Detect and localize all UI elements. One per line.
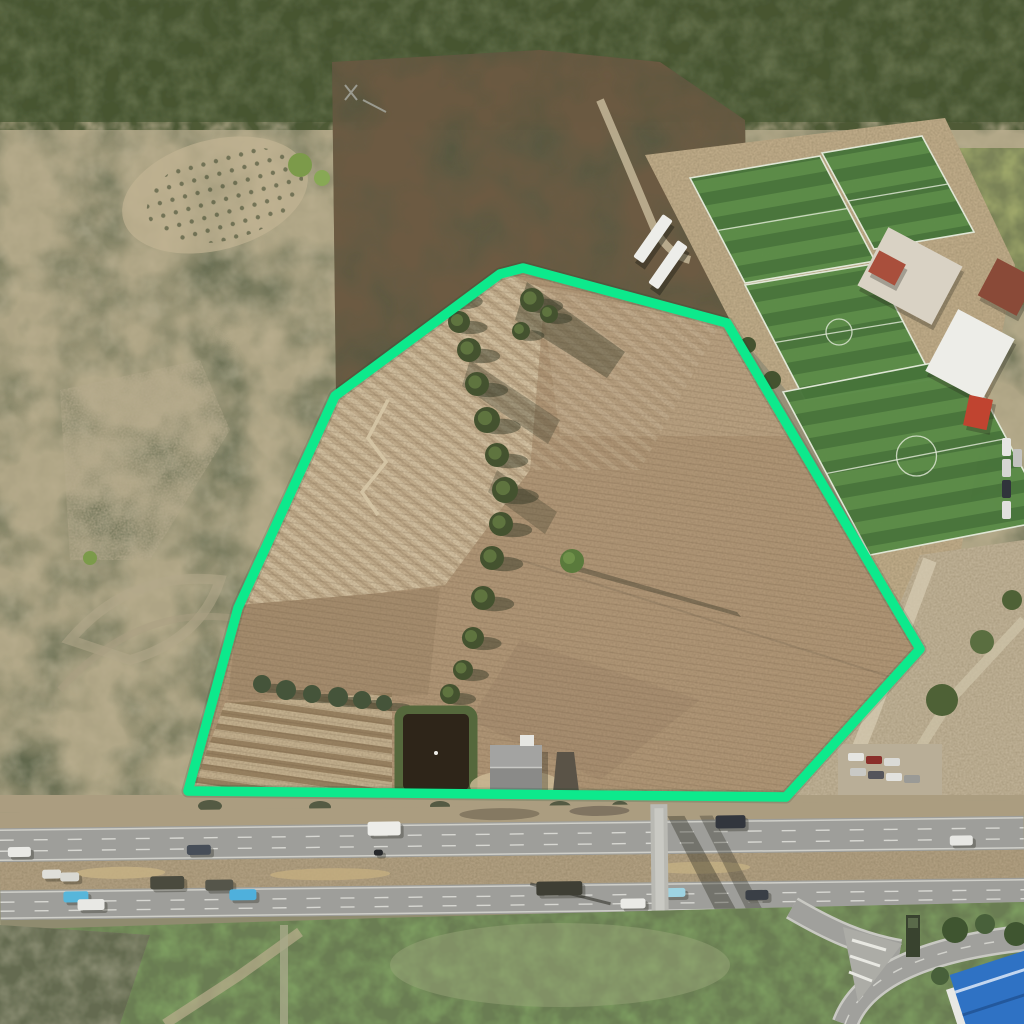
vehicle — [229, 889, 256, 900]
parked-car — [868, 771, 884, 779]
tree-highlight — [456, 663, 467, 674]
tree-highlight — [523, 291, 536, 304]
bush — [328, 687, 348, 707]
tree — [975, 914, 995, 934]
shed — [520, 735, 534, 746]
house-roof-north — [490, 745, 542, 768]
tree-highlight — [496, 481, 510, 495]
roadside-sign-layer — [906, 915, 920, 957]
tree — [1002, 590, 1022, 610]
tree-highlight — [465, 630, 477, 642]
bush — [276, 680, 296, 700]
vehicle — [205, 879, 233, 890]
vehicle — [374, 850, 383, 856]
vehicle — [60, 872, 79, 881]
vehicle — [187, 845, 211, 855]
vehicle — [42, 870, 61, 879]
tree-highlight — [460, 341, 473, 354]
aerial-photo: Aerial drone photo of a farmland parcel … — [0, 0, 1024, 1024]
parked-car — [904, 775, 920, 783]
worn-track — [280, 925, 288, 1024]
tree — [942, 917, 968, 943]
bush — [253, 675, 271, 693]
tree — [931, 967, 949, 985]
tree-highlight — [492, 515, 505, 528]
house-roof-south — [490, 768, 542, 791]
tree — [926, 684, 958, 716]
tree-highlight — [483, 549, 496, 562]
worn-grass-patch — [390, 923, 730, 1007]
vehicle — [368, 821, 401, 835]
vehicle — [715, 815, 745, 828]
lone-tree-highlight — [563, 552, 575, 564]
bird — [434, 751, 438, 755]
vehicle — [8, 847, 31, 857]
vehicle — [620, 898, 645, 908]
tree-highlight — [468, 375, 481, 388]
vehicle — [536, 881, 582, 896]
green-bush — [314, 170, 330, 186]
bush — [376, 695, 392, 711]
parked-car — [866, 756, 882, 764]
billboard-panel — [908, 918, 918, 928]
tree — [970, 630, 994, 654]
parked-car — [886, 773, 902, 781]
green-bush — [83, 551, 97, 565]
tree-highlight — [478, 411, 492, 425]
tree-highlight — [443, 687, 454, 698]
screenshot-root: Aerial drone photo of a farmland parcel … — [0, 0, 1024, 1024]
bush — [303, 685, 321, 703]
tree-highlight — [488, 446, 501, 459]
vehicle — [950, 835, 973, 845]
tree-highlight — [474, 589, 487, 602]
tree-highlight — [514, 324, 524, 334]
parked-car — [850, 768, 866, 776]
parked-car — [884, 758, 900, 766]
parked-car — [1013, 449, 1022, 467]
parked-car — [1002, 459, 1011, 477]
bush — [353, 691, 371, 709]
vehicle — [77, 899, 104, 910]
green-bush — [288, 153, 312, 177]
parked-car — [1002, 438, 1011, 456]
vehicle — [745, 890, 768, 900]
parked-car — [1002, 501, 1011, 519]
parked-car — [1002, 480, 1011, 498]
vehicle — [150, 876, 184, 889]
parked-car — [848, 753, 864, 761]
tree-highlight — [542, 307, 552, 317]
